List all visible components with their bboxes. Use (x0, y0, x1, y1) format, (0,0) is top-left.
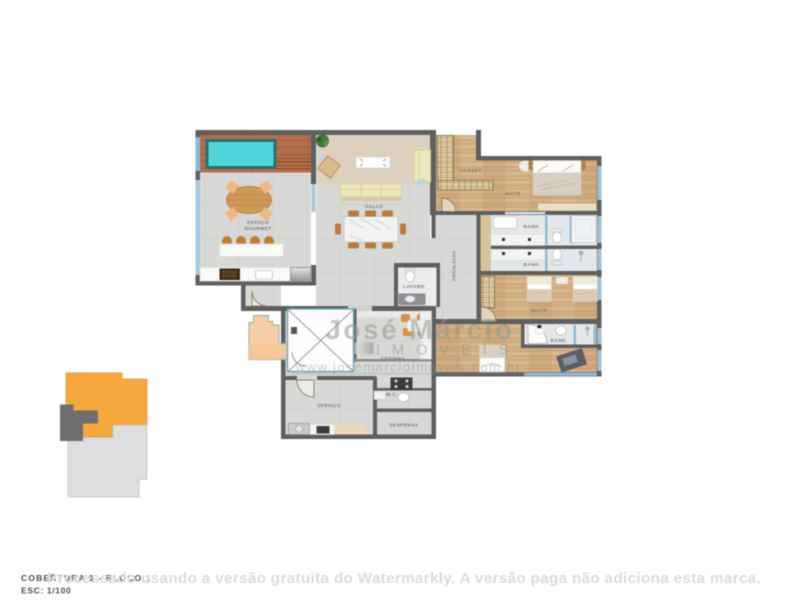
svg-text:LAVABO: LAVABO (403, 284, 425, 289)
svg-text:DESPENSA: DESPENSA (389, 423, 418, 428)
svg-text:ESC: 1/100: ESC: 1/100 (21, 586, 71, 596)
svg-text:W.C.: W.C. (386, 392, 398, 397)
svg-text:SUITE: SUITE (505, 191, 521, 196)
svg-text:SALAS: SALAS (365, 204, 383, 209)
svg-text:CIRCULAÇÃO: CIRCULAÇÃO (452, 250, 457, 281)
svg-text:José Márcio: José Márcio (325, 314, 514, 345)
svg-text:IMÓVEIS: IMÓVEIS (376, 342, 520, 359)
svg-text:Processado usando a versão gra: Processado usando a versão gratuita do W… (47, 570, 761, 587)
svg-text:BANH.: BANH. (550, 338, 567, 343)
svg-text:CLOSET: CLOSET (460, 168, 482, 173)
svg-text:www.josemarcioimoveis.com.br: www.josemarcioimoveis.com.br (294, 360, 521, 375)
svg-text:BANH.: BANH. (523, 224, 540, 229)
svg-text:BANH.: BANH. (523, 262, 540, 267)
svg-text:GOURMET: GOURMET (245, 226, 272, 231)
svg-text:SERVIÇO: SERVIÇO (317, 403, 341, 408)
svg-text:SUITE: SUITE (531, 308, 547, 313)
svg-text:ESPAÇO: ESPAÇO (247, 220, 269, 225)
